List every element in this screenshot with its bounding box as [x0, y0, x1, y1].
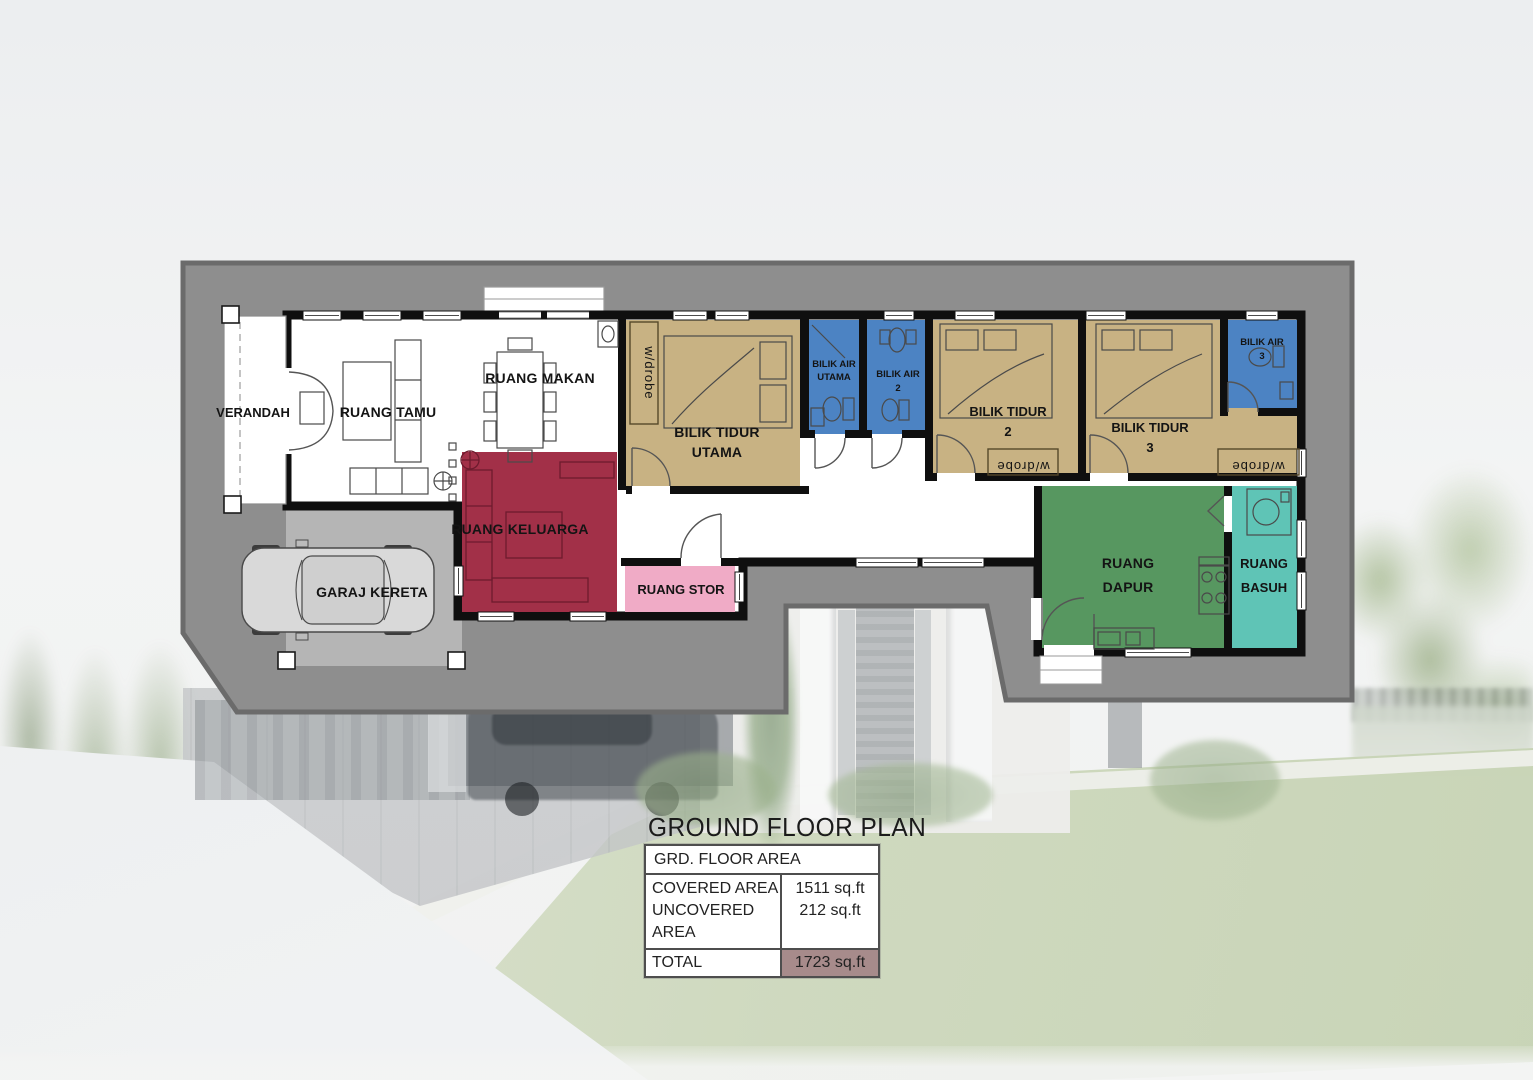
opening-dapur — [1031, 598, 1043, 640]
area-table-header: GRD. FLOOR AREA — [646, 846, 878, 875]
label-ruang-basuh: RUANG — [1240, 556, 1288, 571]
label-bilik-air-2-num: 2 — [895, 383, 900, 394]
label-ruang-dapur-2: DAPUR — [1103, 579, 1154, 595]
page: w/drobe w/drobe w/drobe — [0, 0, 1533, 1080]
label-verandah: VERANDAH — [216, 405, 290, 420]
label-bilik-tidur-3: BILIK TIDUR — [1111, 420, 1189, 435]
page-title: GROUND FLOOR PLAN — [648, 812, 930, 843]
label-bilik-air-utama-2: UTAMA — [817, 372, 851, 383]
label-bilik-tidur-3-num: 3 — [1146, 440, 1153, 455]
label-bilik-tidur-2-num: 2 — [1004, 424, 1011, 439]
label-ruang-keluarga: RUANG KELUARGA — [451, 521, 588, 537]
patio — [484, 287, 604, 314]
wardrobe-label: w/drobe — [1231, 459, 1285, 474]
label-ruang-tamu: RUANG TAMU — [340, 404, 437, 420]
wardrobe-label: w/drobe — [996, 459, 1050, 474]
label-ruang-dapur: RUANG — [1102, 555, 1154, 571]
opening-backdoor — [1044, 645, 1094, 657]
label-garaj-kereta: GARAJ KERETA — [316, 584, 428, 600]
label-ruang-makan: RUANG MAKAN — [485, 370, 595, 386]
column-footing — [448, 652, 465, 669]
covered-area-label: COVERED AREA — [652, 878, 780, 900]
area-table: GRD. FLOOR AREA COVERED AREA UNCOVERED A… — [644, 844, 880, 978]
total-value: 1723 sq.ft — [782, 950, 878, 976]
label-ruang-basuh-2: BASUH — [1241, 580, 1287, 595]
room-bilik-tidur-2 — [933, 320, 1078, 473]
room-bilik-tidur-utama — [626, 320, 800, 486]
room-bilik-air-3 — [1228, 320, 1297, 408]
label-bilik-tidur-2: BILIK TIDUR — [969, 404, 1047, 419]
wardrobe-label: w/drobe — [642, 345, 657, 399]
total-label: TOTAL — [646, 950, 782, 976]
label-bilik-tidur-utama: BILIK TIDUR — [674, 424, 759, 440]
uncovered-area-label: UNCOVERED AREA — [652, 900, 780, 944]
uncovered-area-value: 212 sq.ft — [782, 900, 878, 922]
label-bilik-air-2: BILIK AIR — [876, 369, 920, 380]
label-bilik-air-3: BILIK AIR — [1240, 337, 1284, 348]
label-bilik-air-utama: BILIK AIR — [812, 359, 856, 370]
label-bilik-tidur-utama-2: UTAMA — [692, 444, 743, 460]
covered-area-value: 1511 sq.ft — [782, 878, 878, 900]
column-footing — [278, 652, 295, 669]
label-ruang-stor: RUANG STOR — [637, 582, 725, 597]
label-bilik-air-3-num: 3 — [1259, 351, 1264, 362]
